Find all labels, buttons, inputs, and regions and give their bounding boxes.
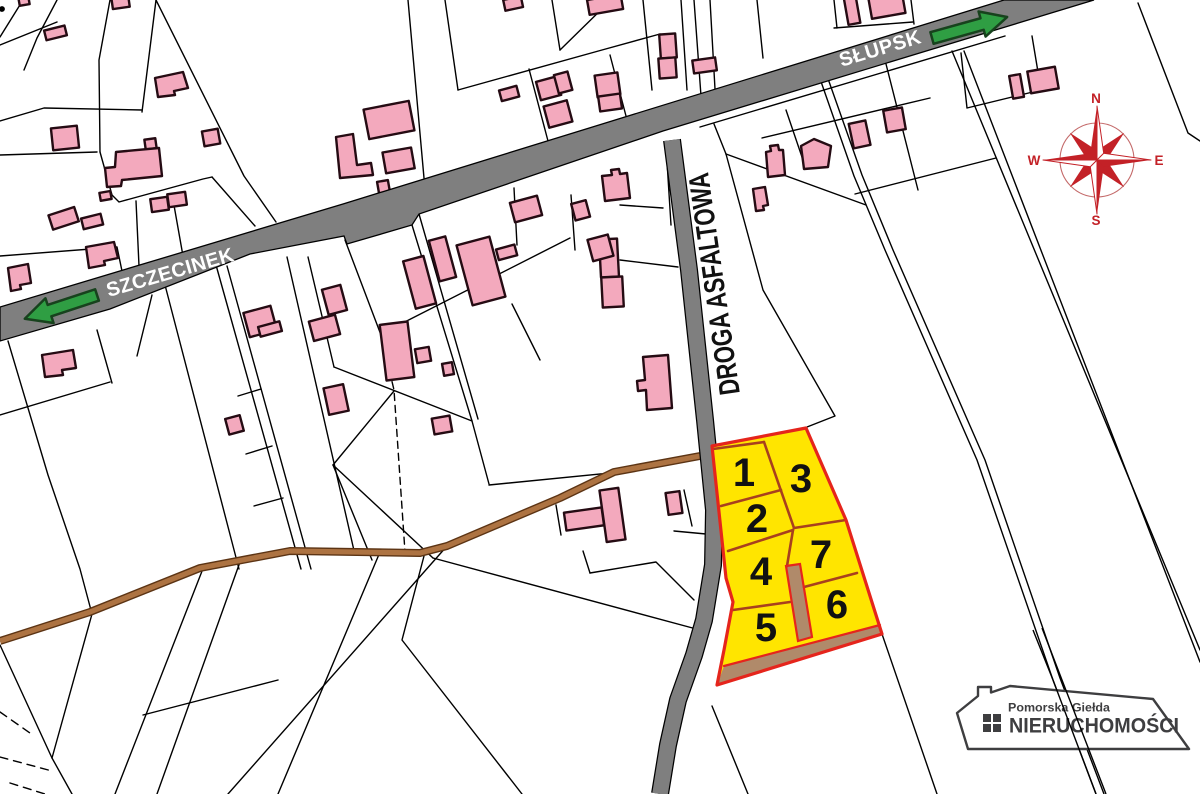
svg-text:5: 5 — [755, 606, 777, 650]
svg-text:4: 4 — [750, 550, 773, 594]
svg-text:7: 7 — [810, 533, 832, 577]
svg-text:Pomorska Giełda: Pomorska Giełda — [1008, 701, 1110, 715]
svg-text:3: 3 — [790, 457, 812, 501]
svg-text:E: E — [1154, 153, 1163, 168]
svg-text:W: W — [1028, 153, 1041, 168]
svg-text:2: 2 — [746, 497, 768, 541]
svg-text:S: S — [1091, 213, 1100, 228]
svg-text:N: N — [1091, 91, 1101, 106]
svg-text:1: 1 — [733, 451, 755, 495]
svg-text:NIERUCHOMOŚCI: NIERUCHOMOŚCI — [1009, 714, 1179, 738]
svg-text:6: 6 — [826, 583, 848, 627]
